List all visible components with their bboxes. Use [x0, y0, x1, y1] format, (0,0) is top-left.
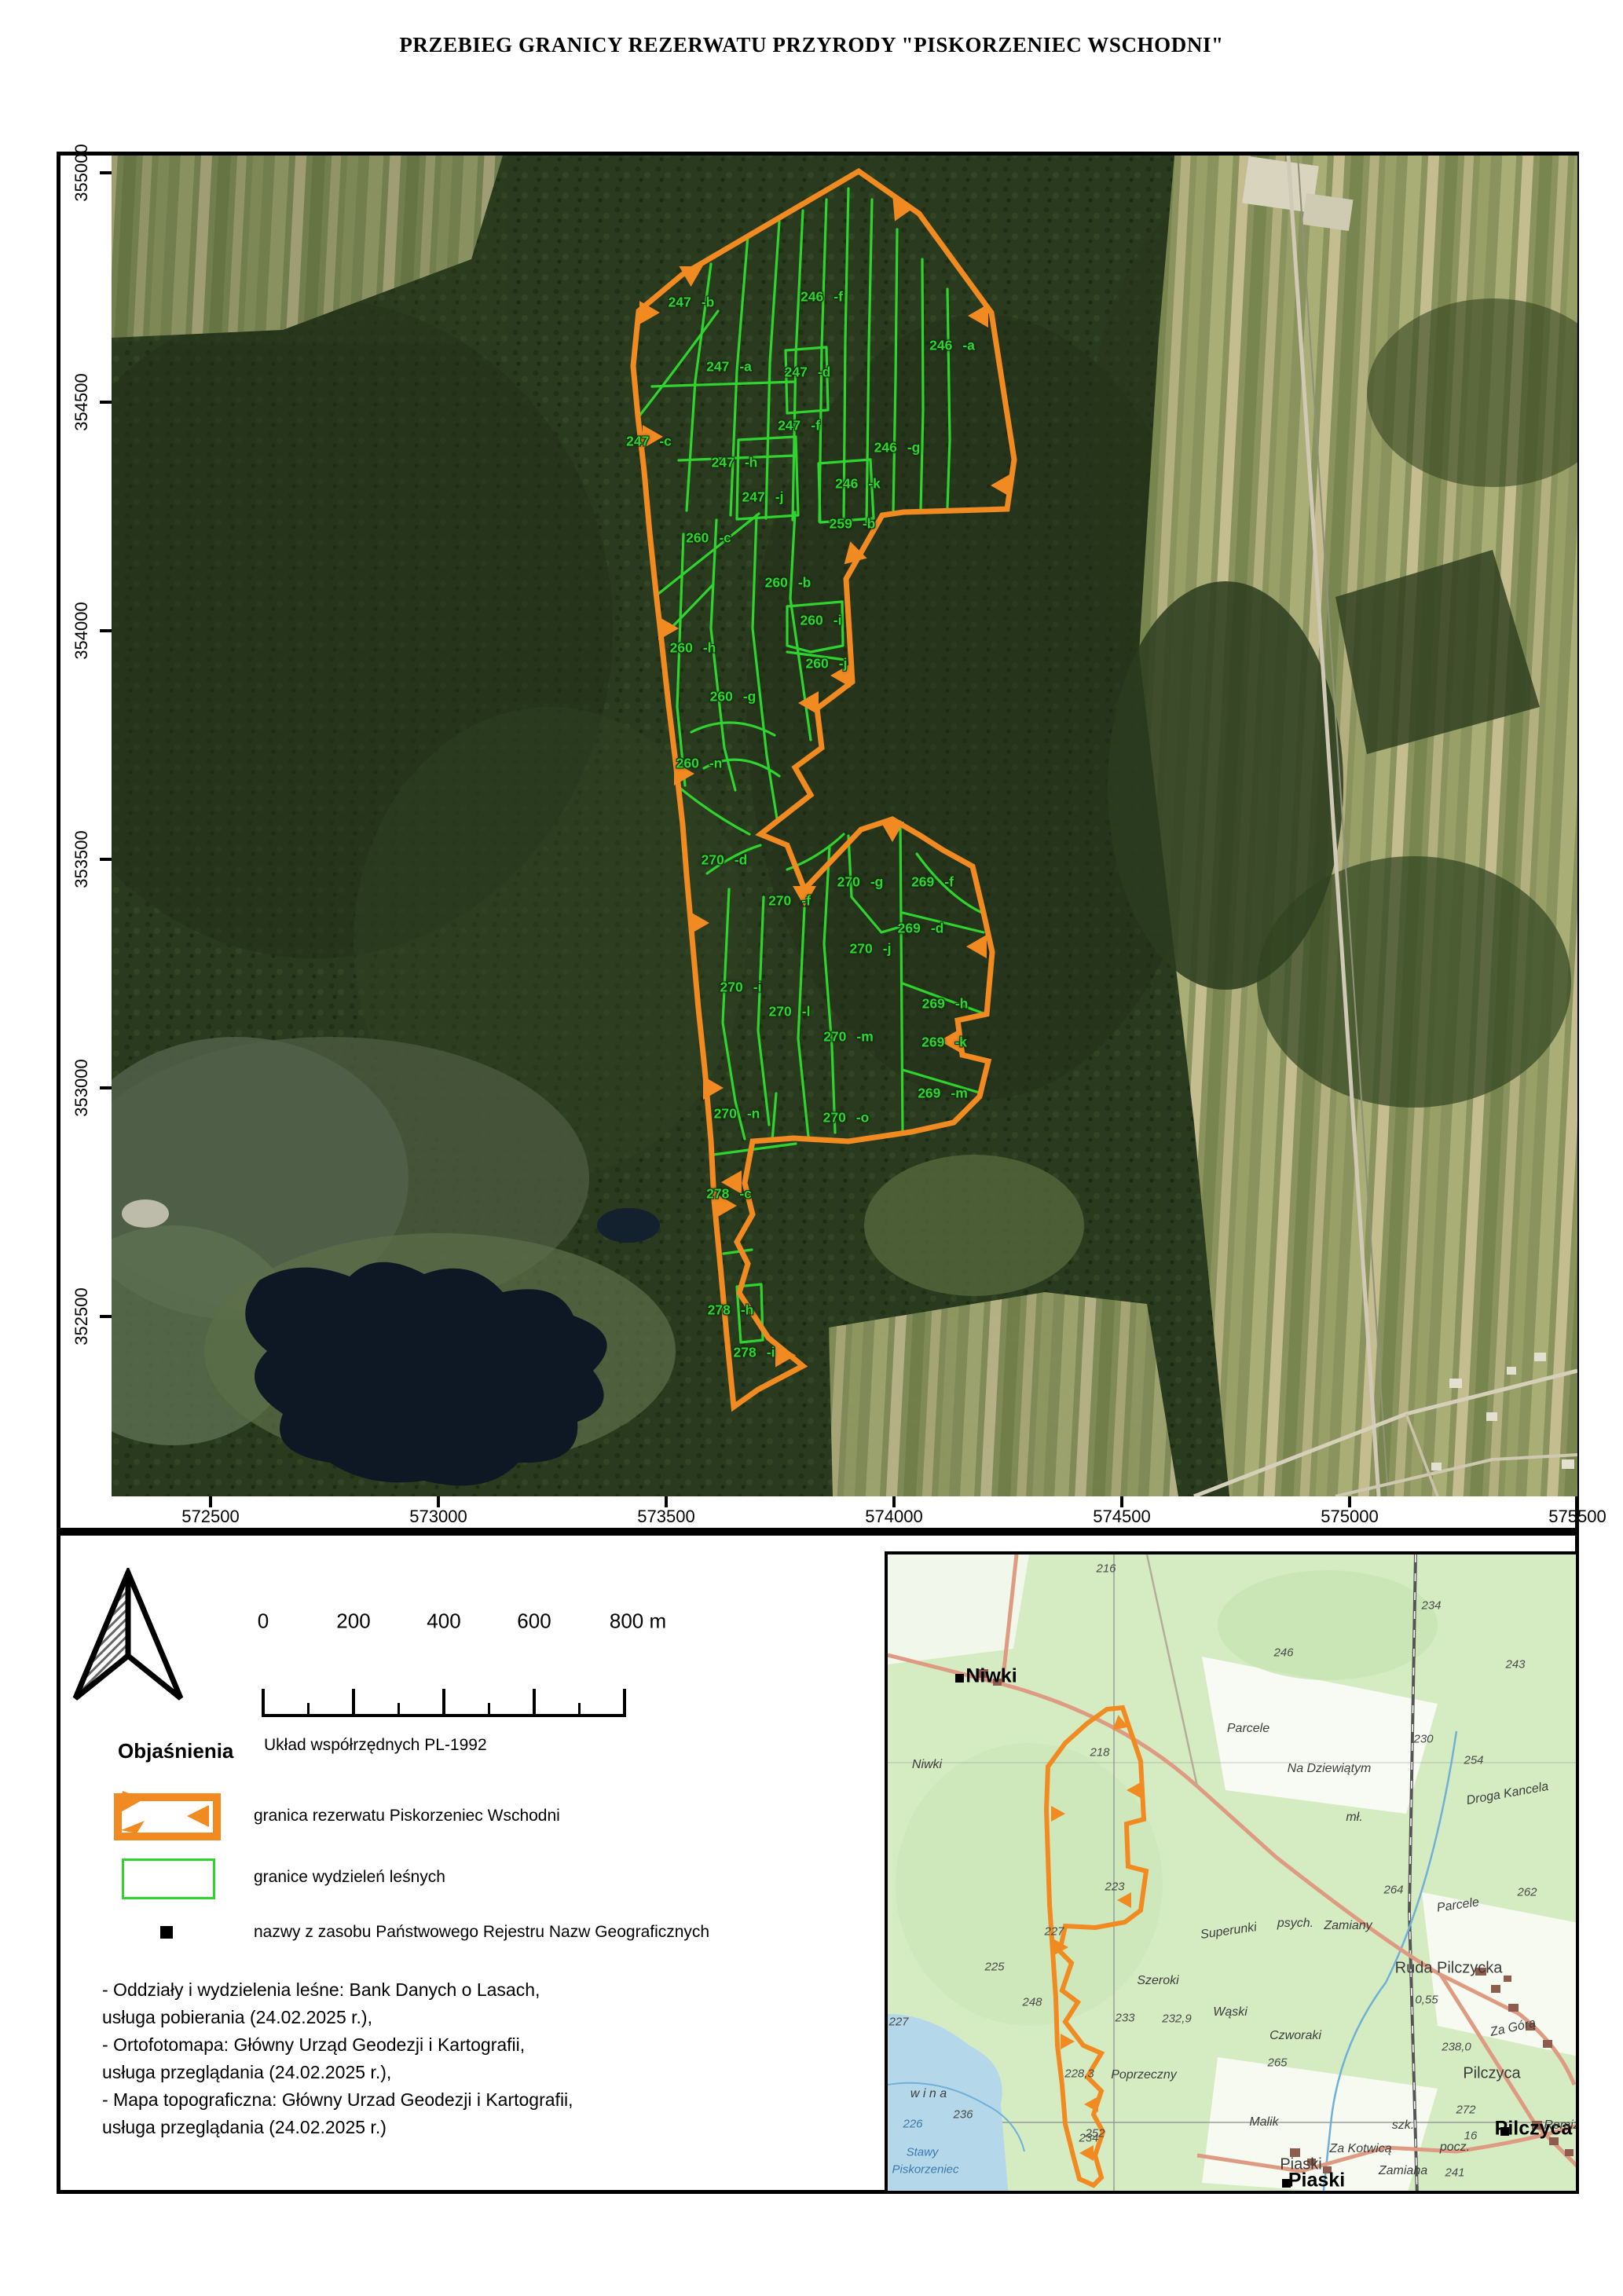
inset-label: 248	[1022, 1996, 1042, 2009]
parcel-label: 247-d	[785, 364, 831, 381]
inset-label: 230	[1413, 1733, 1433, 1746]
inset-label: Piaski	[1280, 2156, 1321, 2174]
inset-label: 262	[1517, 1886, 1537, 1899]
inset-label: Remizy	[1544, 2118, 1579, 2133]
inset-label: 227	[1044, 1925, 1064, 1939]
parcel-label: 270-i	[720, 980, 762, 996]
inset-label: Zamiany	[1324, 1919, 1372, 1933]
inset-label: 233	[1115, 2012, 1134, 2025]
x-axis-tick	[437, 1496, 440, 1507]
source-line: usługa przeglądania (24.02.2025 r.),	[102, 2059, 573, 2086]
inset-label: mł.	[1346, 1811, 1362, 1825]
parcel-label: 270-l	[769, 1004, 811, 1020]
parcel-label: 269-m	[918, 1086, 968, 1102]
x-axis-tick	[892, 1496, 896, 1507]
inset-label: 223	[1105, 1880, 1124, 1894]
source-line: - Oddziały i wydzielenia leśne: Bank Dan…	[102, 1976, 573, 2004]
x-axis-tick	[665, 1496, 668, 1507]
x-axis-label: 575000	[1321, 1507, 1378, 1527]
inset-label: Za Kotwicą	[1329, 2142, 1391, 2156]
parcel-label: 269-f	[911, 874, 954, 891]
y-axis-tick	[100, 1315, 112, 1318]
parcel-label: 260-b	[765, 575, 811, 591]
legend-item-forest: granice wydzieleń leśnych	[254, 1868, 445, 1887]
inset-label: Malik	[1249, 2115, 1278, 2129]
source-line: - Ortofotomapa: Główny Urząd Geodezji i …	[102, 2031, 573, 2059]
y-axis-label: 353500	[71, 830, 92, 888]
y-axis-tick	[100, 1086, 112, 1089]
inset-label: 218	[1090, 1746, 1109, 1760]
parcel-label: 246-k	[835, 476, 881, 493]
inset-label: Niwki	[912, 1758, 942, 1772]
parcel-label: 247-b	[669, 295, 715, 311]
inset-label: 232,9	[1162, 2012, 1192, 2026]
inset-label: 243	[1505, 1658, 1525, 1672]
north-arrow-icon	[69, 1568, 187, 1705]
y-axis-label: 353000	[71, 1059, 92, 1116]
y-axis-tick	[100, 858, 112, 861]
scale-label: 200	[336, 1609, 370, 1634]
parcel-label: 270-n	[714, 1106, 760, 1122]
inset-label: 228,3	[1064, 2067, 1094, 2081]
inset-overview-map: NiwkiPilczycaPiaskiRuda PilczyckaPilczyc…	[885, 1551, 1579, 2194]
parcel-label: 246-f	[801, 289, 843, 306]
parcel-label: 247-h	[712, 455, 758, 471]
inset-label: 272	[1456, 2104, 1475, 2117]
scale-label: 600	[517, 1609, 551, 1634]
parcel-label: 260-j	[806, 656, 848, 672]
parcel-label: 247-c	[626, 434, 672, 450]
legend-heading: Objaśnienia	[118, 1739, 233, 1763]
x-axis-label: 573500	[637, 1507, 694, 1527]
parcel-label: 260-g	[710, 689, 757, 705]
parcel-label: 278-c	[706, 1186, 752, 1203]
x-axis-label: 572500	[181, 1507, 239, 1527]
map-document: PRZEBIEG GRANICY REZERWATU PRZYRODY "PIS…	[0, 0, 1623, 2296]
inset-label: pocz.	[1440, 2140, 1470, 2155]
inset-label: Czworaki	[1269, 2029, 1321, 2043]
crs-label: Układ współrzędnych PL-1992	[264, 1736, 487, 1755]
source-line: usługa pobierania (24.02.2025 r.),	[102, 2004, 573, 2031]
x-axis-label: 574500	[1093, 1507, 1150, 1527]
scale-label: 400	[427, 1609, 460, 1634]
inset-label: Poprzeczny	[1111, 2068, 1177, 2082]
parcel-label: 269-h	[922, 996, 969, 1013]
parcel-label: 247-j	[742, 489, 784, 506]
inset-label: 264	[1383, 1884, 1403, 1897]
scale-label: 0	[258, 1609, 269, 1634]
x-axis-tick	[1348, 1496, 1351, 1507]
inset-label: 238,0	[1442, 2041, 1471, 2054]
y-axis-tick	[100, 401, 112, 404]
inset-label: Parcele	[1227, 1722, 1269, 1736]
legend-prng-symbol	[160, 1926, 173, 1939]
inset-label: 234	[1421, 1599, 1441, 1613]
inset-label: 226	[903, 2118, 922, 2131]
y-axis-label: 352500	[71, 1287, 92, 1345]
inset-label: 227	[888, 2016, 908, 2029]
parcel-label: 270-j	[850, 941, 892, 958]
parcel-label: 270-d	[702, 852, 748, 869]
legend-item-reserve: granica rezerwatu Piskorzeniec Wschodni	[254, 1807, 560, 1825]
inset-label: 252	[1085, 2127, 1105, 2140]
inset-label: 225	[984, 1961, 1004, 1974]
inset-label: Stawy	[907, 2146, 939, 2159]
legend-reserve-symbol	[110, 1789, 225, 1843]
inset-label: Piskorzeniec	[892, 2163, 958, 2177]
parcel-label: 270-m	[823, 1029, 874, 1045]
data-sources: - Oddziały i wydzielenia leśne: Bank Dan…	[102, 1976, 573, 2141]
inset-label: szk.	[1392, 2118, 1414, 2133]
inset-label: 236	[953, 2108, 973, 2122]
inset-label: Niwki	[965, 1665, 1017, 1688]
parcel-label: 247-a	[706, 359, 752, 375]
inset-label: 216	[1096, 1562, 1116, 1576]
x-axis-tick	[1576, 1496, 1579, 1507]
aerial-imagery	[16, 156, 1618, 1496]
parcel-label: 269-k	[921, 1034, 967, 1051]
legend-forest-symbol	[122, 1858, 215, 1899]
inset-label: Wąski	[1213, 2005, 1247, 2020]
inset-label: Szeroki	[1137, 1974, 1178, 1988]
parcel-label: 270-g	[837, 874, 884, 891]
source-line: usługa przeglądania (24.02.2025 r.)	[102, 2114, 573, 2141]
x-axis-tick	[209, 1496, 212, 1507]
x-axis-label: 575500	[1548, 1507, 1606, 1527]
y-axis-label: 354500	[71, 373, 92, 430]
inset-label: 265	[1267, 2056, 1287, 2070]
x-axis-tick	[1120, 1496, 1123, 1507]
source-line: - Mapa topograficzna: Główny Urzad Geode…	[102, 2086, 573, 2114]
parcel-label: 260-c	[686, 530, 731, 547]
parcel-label: 270-f	[768, 893, 811, 910]
parcel-label: 246-a	[929, 338, 975, 354]
parcel-label: 260-n	[676, 756, 723, 772]
parcel-label: 260-i	[801, 613, 842, 629]
parcel-label: 270-o	[823, 1110, 870, 1126]
inset-label: 254	[1464, 1754, 1483, 1767]
lake	[245, 1262, 606, 1486]
parcel-label: 260-h	[670, 640, 716, 657]
parcel-label: 269-d	[898, 921, 944, 937]
inset-label: Pilczyca	[1463, 2065, 1520, 2083]
y-axis-tick	[100, 629, 112, 632]
inset-label: 16	[1464, 2129, 1478, 2143]
inset-label: psych.	[1277, 1917, 1313, 1931]
x-axis-label: 573000	[409, 1507, 467, 1527]
parcel-label: 247-f	[778, 418, 820, 434]
inset-label: 246	[1273, 1646, 1293, 1660]
scale-label: 800 m	[610, 1609, 666, 1634]
inset-label: 0,55	[1415, 1994, 1438, 2007]
inset-topo-canvas	[888, 1554, 1579, 2194]
inset-label: Zamiana	[1379, 2164, 1427, 2178]
inset-label: 241	[1445, 2166, 1464, 2180]
y-axis-label: 355000	[71, 144, 92, 201]
legend-item-prng: nazwy z zasobu Państwowego Rejestru Nazw…	[254, 1923, 709, 1942]
y-axis-tick	[100, 171, 112, 174]
inset-label: Na Dziewiątym	[1288, 1762, 1372, 1776]
parcel-label: 278-i	[734, 1345, 775, 1361]
parcel-label: 246-g	[874, 440, 921, 456]
parcel-label: 278-h	[708, 1302, 754, 1319]
parcel-label: 259-b	[830, 516, 876, 533]
x-axis-label: 574000	[865, 1507, 922, 1527]
inset-label: w i n a	[910, 2087, 947, 2101]
inset-label: Ruda Pilczycka	[1395, 1960, 1503, 1978]
y-axis-label: 354000	[71, 602, 92, 659]
